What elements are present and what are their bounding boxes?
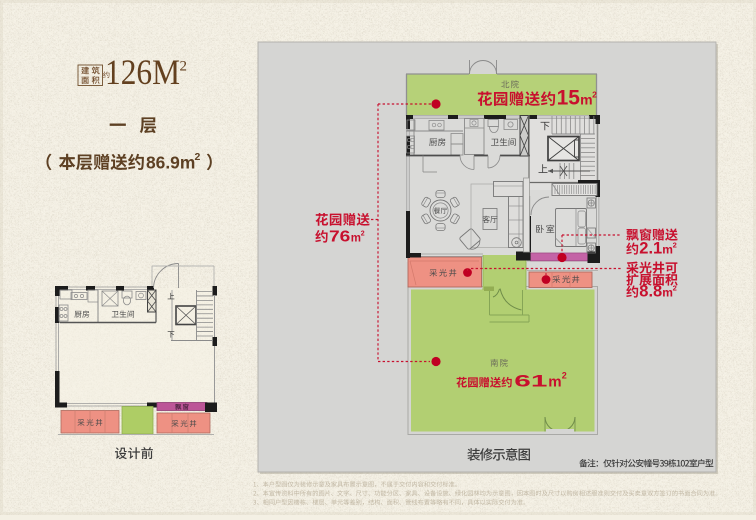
svg-text:m: m	[548, 374, 561, 391]
svg-text:2.1: 2.1	[639, 240, 662, 258]
svg-text:126M: 126M	[105, 52, 180, 92]
svg-text:76: 76	[329, 227, 351, 245]
svg-text:61: 61	[514, 372, 547, 391]
svg-text:2: 2	[673, 241, 677, 250]
svg-text:m: m	[662, 243, 673, 257]
svg-text:m: m	[580, 92, 592, 108]
svg-text:m: m	[351, 233, 361, 245]
svg-text:2: 2	[562, 371, 567, 381]
svg-text:86.9m: 86.9m	[146, 153, 195, 173]
svg-text:m: m	[662, 286, 673, 300]
svg-text:15: 15	[557, 87, 581, 110]
svg-text:2: 2	[673, 284, 677, 293]
svg-text:2: 2	[195, 151, 201, 163]
svg-text:2: 2	[592, 90, 597, 100]
svg-text:2: 2	[361, 231, 365, 238]
svg-text:2: 2	[180, 59, 188, 75]
svg-text:8.8: 8.8	[639, 283, 662, 301]
